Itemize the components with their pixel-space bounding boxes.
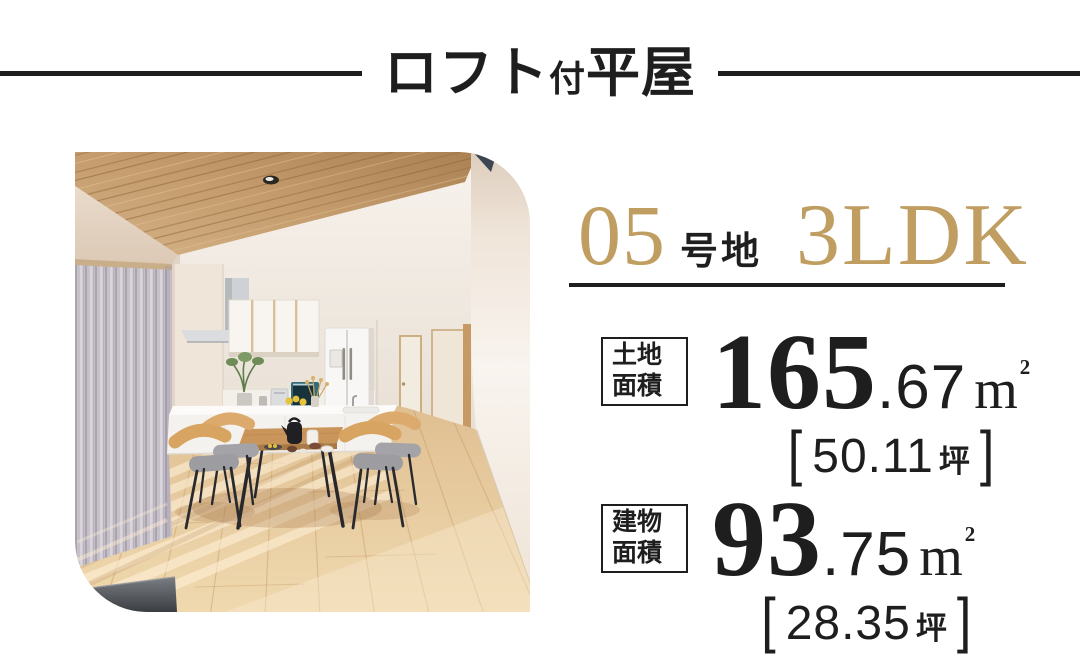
interior-photo	[75, 152, 530, 612]
land-area-value: 165 .67 m 2 [ 50.11 坪 ]	[712, 331, 1030, 484]
bracket-close: ]	[980, 423, 994, 484]
downlight	[263, 176, 279, 185]
lot-suffix: 号地	[680, 235, 762, 269]
title-text-1: ロフト	[384, 43, 549, 103]
listing-spec: 05 号地 3LDK 土地 面積 165 .67 m 2 [ 50.11 坪	[569, 196, 1005, 651]
bracket-close: ]	[957, 590, 971, 651]
building-area-label: 建物 面積	[601, 504, 688, 573]
title-text-2: 平屋	[586, 43, 696, 103]
land-area-sqm-int: 165	[712, 331, 877, 415]
land-area-tsubo-unit: 坪	[939, 436, 970, 481]
lot-number: 05	[578, 197, 666, 274]
vertical-blinds	[75, 265, 172, 569]
land-area-label-line2: 面積	[612, 373, 677, 401]
land-area-sqm-dec: .67	[877, 357, 966, 419]
building-area-value: 93 .75 m 2 [ 28.35 坪 ]	[712, 498, 975, 651]
title-rule-left	[0, 71, 362, 76]
building-area-sqm-int: 93	[712, 498, 822, 582]
page-title-row: ロフト付平屋	[0, 44, 1080, 103]
land-area-label: 土地 面積	[601, 337, 688, 406]
land-area-unit: m	[974, 362, 1018, 418]
building-area-sqm-dec: .75	[822, 524, 911, 586]
toaster	[271, 389, 288, 407]
building-area-unit-exponent: 2	[965, 522, 976, 547]
real-estate-flyer: ロフト付平屋	[0, 0, 1080, 670]
bracket-open: [	[761, 590, 775, 651]
interior-photo-illustration	[75, 152, 530, 612]
building-area-tsubo-value: 28.35	[786, 596, 911, 651]
layout-type: 3LDK	[796, 196, 1029, 275]
upper-cabinets	[229, 300, 319, 357]
title-rule-right	[718, 71, 1080, 76]
land-area-tsubo: [ 50.11 坪 ]	[712, 429, 1030, 484]
refrigerator	[325, 328, 374, 410]
bracket-open: [	[788, 423, 802, 484]
title-text-small: 付	[549, 59, 586, 99]
land-area-unit-exponent: 2	[1020, 355, 1031, 380]
building-area-label-line2: 面積	[612, 540, 677, 568]
building-area-unit: m	[919, 529, 963, 585]
building-area-tsubo-unit: 坪	[916, 603, 947, 648]
building-area-tsubo: [ 28.35 坪 ]	[712, 596, 975, 651]
land-area-block: 土地 面積 165 .67 m 2 [ 50.11 坪 ]	[601, 331, 1005, 484]
building-area-label-line1: 建物	[612, 509, 677, 537]
page-title: ロフト付平屋	[384, 44, 696, 103]
land-area-label-line1: 土地	[612, 342, 677, 370]
lot-row: 05 号地 3LDK	[578, 196, 1005, 275]
building-area-block: 建物 面積 93 .75 m 2 [ 28.35 坪 ]	[601, 498, 1005, 651]
land-area-tsubo-value: 50.11	[812, 429, 934, 484]
